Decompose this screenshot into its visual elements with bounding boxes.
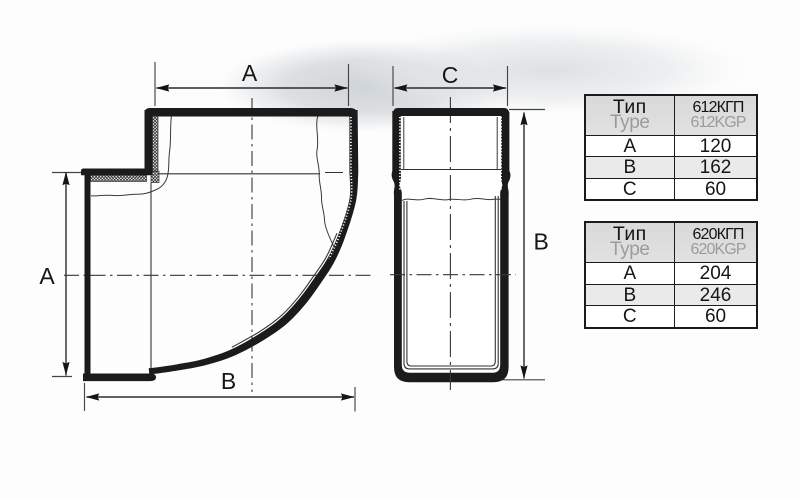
svg-text:A: A [39, 263, 55, 289]
svg-text:B: B [221, 368, 236, 394]
svg-text:C: C [442, 62, 459, 88]
svg-text:B: B [534, 229, 549, 255]
svg-text:A: A [242, 60, 258, 86]
